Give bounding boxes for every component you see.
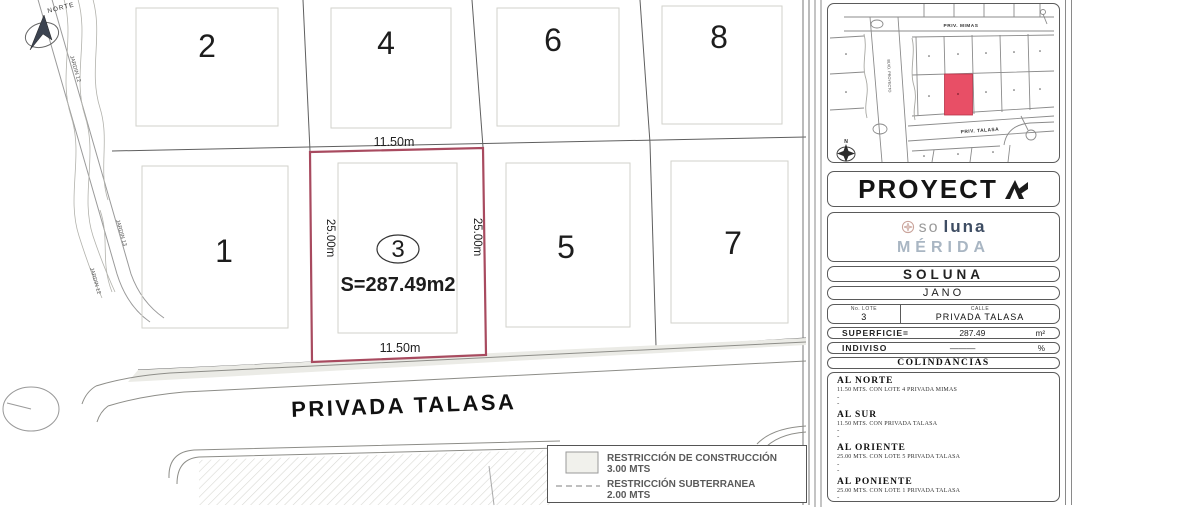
lot-3-dim-left: 25.00m bbox=[324, 219, 336, 257]
lot-number: 6 bbox=[544, 22, 562, 58]
lot-number-value: 3 bbox=[861, 312, 867, 322]
street-cell: CALLE PRIVADA TALASA bbox=[901, 305, 1059, 323]
indiviso-box: INDIVISO ——— % bbox=[827, 342, 1060, 354]
lot-3-area: S=287.49m2 bbox=[340, 274, 455, 296]
legend-underground-label: RESTRICCIÓN SUBTERRANEA bbox=[607, 477, 755, 490]
colindancias-title-box: COLINDANCIAS bbox=[827, 357, 1060, 369]
colindancia-heading: AL PONIENTE bbox=[837, 477, 1050, 487]
sheet-divider-lines bbox=[815, 0, 821, 507]
lot-street-box: No. LOTE 3 CALLE PRIVADA TALASA bbox=[827, 304, 1060, 324]
colindancia-heading: AL NORTE bbox=[837, 376, 1050, 386]
sheet-border-line bbox=[1071, 0, 1072, 505]
lot-boundaries bbox=[112, 0, 806, 370]
lot-number-cell: No. LOTE 3 bbox=[828, 305, 901, 323]
proyecta-logo-box: PROYECT bbox=[827, 171, 1060, 207]
development-name: SOLUNA bbox=[903, 267, 984, 282]
scanned-lot-plan-sheet: JARDIN 12 JARDIN 13 JARDIN 12 NORTE bbox=[0, 0, 1200, 507]
legend-underground-value: 2.00 MTS bbox=[607, 490, 651, 501]
minimap-lot-dots bbox=[845, 50, 1041, 157]
superficie-value: 287.49 bbox=[959, 328, 985, 338]
legend-construction-swatch bbox=[566, 452, 598, 473]
north-compass-icon bbox=[22, 15, 62, 52]
street-name-label: PRIVADA TALASA bbox=[291, 389, 517, 422]
lot-3-number: 3 bbox=[391, 236, 404, 263]
lot-number: 2 bbox=[198, 28, 216, 64]
lot-number: 5 bbox=[557, 229, 575, 265]
site-plan: JARDIN 12 JARDIN 13 JARDIN 12 NORTE bbox=[0, 0, 822, 507]
lot-number: 8 bbox=[710, 19, 728, 55]
lot-3-dim-bottom: 11.50m bbox=[380, 341, 421, 355]
colindancias-title: COLINDANCIAS bbox=[897, 358, 989, 368]
sidewalk-band bbox=[128, 338, 806, 382]
legend-construction-value: 3.00 MTS bbox=[607, 464, 651, 475]
minimap-drawing: N PRIV. MIMAS PRIV. TALASA BLVD. PROYECT… bbox=[828, 4, 1059, 162]
minimap-blvd-label: BLVD. PROYECTO bbox=[886, 59, 891, 92]
indiviso-label: INDIVISO bbox=[842, 343, 887, 353]
soluna-logo-suffix: luna bbox=[943, 217, 986, 237]
lot-number: 1 bbox=[215, 233, 233, 269]
lot-3-dim-top: 11.50m bbox=[374, 135, 415, 149]
legend: RESTRICCIÓN DE CONSTRUCCIÓN 3.00 MTS RES… bbox=[548, 446, 807, 503]
superficie-label: SUPERFICIE= bbox=[842, 328, 909, 338]
lamp-symbol bbox=[1041, 10, 1046, 15]
superficie-unit: m² bbox=[1036, 329, 1045, 338]
colindancia-heading: AL ORIENTE bbox=[837, 443, 1050, 453]
lot-number: 4 bbox=[377, 25, 395, 61]
proyecta-arrow-a-icon bbox=[1003, 179, 1029, 200]
proyecta-logo-text: PROYECT bbox=[858, 174, 998, 205]
superficie-box: SUPERFICIE= 287.49 m² bbox=[827, 327, 1060, 339]
landscape-wavy-lines bbox=[63, 0, 115, 298]
north-label: NORTE bbox=[47, 1, 76, 14]
soluna-rosette-icon bbox=[901, 220, 915, 234]
roundabout-circle bbox=[3, 387, 59, 431]
info-sidebar: N PRIV. MIMAS PRIV. TALASA BLVD. PROYECT… bbox=[827, 0, 1060, 507]
colindancia-heading: AL SUR bbox=[837, 410, 1050, 420]
boulevard-road bbox=[37, 0, 164, 322]
jardin-road-label: JARDIN 12 bbox=[88, 267, 101, 295]
location-minimap: N PRIV. MIMAS PRIV. TALASA BLVD. PROYECT… bbox=[827, 3, 1060, 163]
soluna-logo-prefix: so bbox=[919, 219, 940, 237]
jardin-road-label: JARDIN 12 bbox=[68, 55, 81, 83]
merida-label: MÉRIDA bbox=[897, 239, 990, 257]
setback-restriction-lines bbox=[136, 6, 788, 333]
lot-3-dim-right: 25.00m bbox=[471, 218, 483, 256]
minimap-north-label: N bbox=[844, 139, 848, 145]
privada-name-box: JANO bbox=[827, 286, 1060, 300]
development-name-box: SOLUNA bbox=[827, 266, 1060, 282]
south-block-hatch bbox=[199, 450, 552, 505]
plan-sheet-edge bbox=[803, 0, 809, 505]
street-field-value: PRIVADA TALASA bbox=[936, 312, 1025, 322]
indiviso-unit: % bbox=[1038, 344, 1045, 353]
minimap-street-top-label: PRIV. MIMAS bbox=[944, 23, 979, 29]
minimap-street-mid-label: PRIV. TALASA bbox=[961, 127, 1000, 136]
indiviso-value: ——— bbox=[950, 343, 976, 353]
sheet-border-line bbox=[1065, 0, 1066, 505]
lot-number: 7 bbox=[724, 225, 742, 261]
minimap-compass-icon bbox=[837, 144, 855, 162]
jardin-road-label: JARDIN 13 bbox=[114, 219, 127, 247]
legend-construction-label: RESTRICCIÓN DE CONSTRUCCIÓN bbox=[607, 451, 777, 464]
colindancias-box: AL NORTE 11.50 MTS. CON LOTE 4 PRIVADA M… bbox=[827, 372, 1060, 502]
privada-name: JANO bbox=[923, 287, 964, 299]
soluna-logo-box: so luna MÉRIDA bbox=[827, 212, 1060, 262]
